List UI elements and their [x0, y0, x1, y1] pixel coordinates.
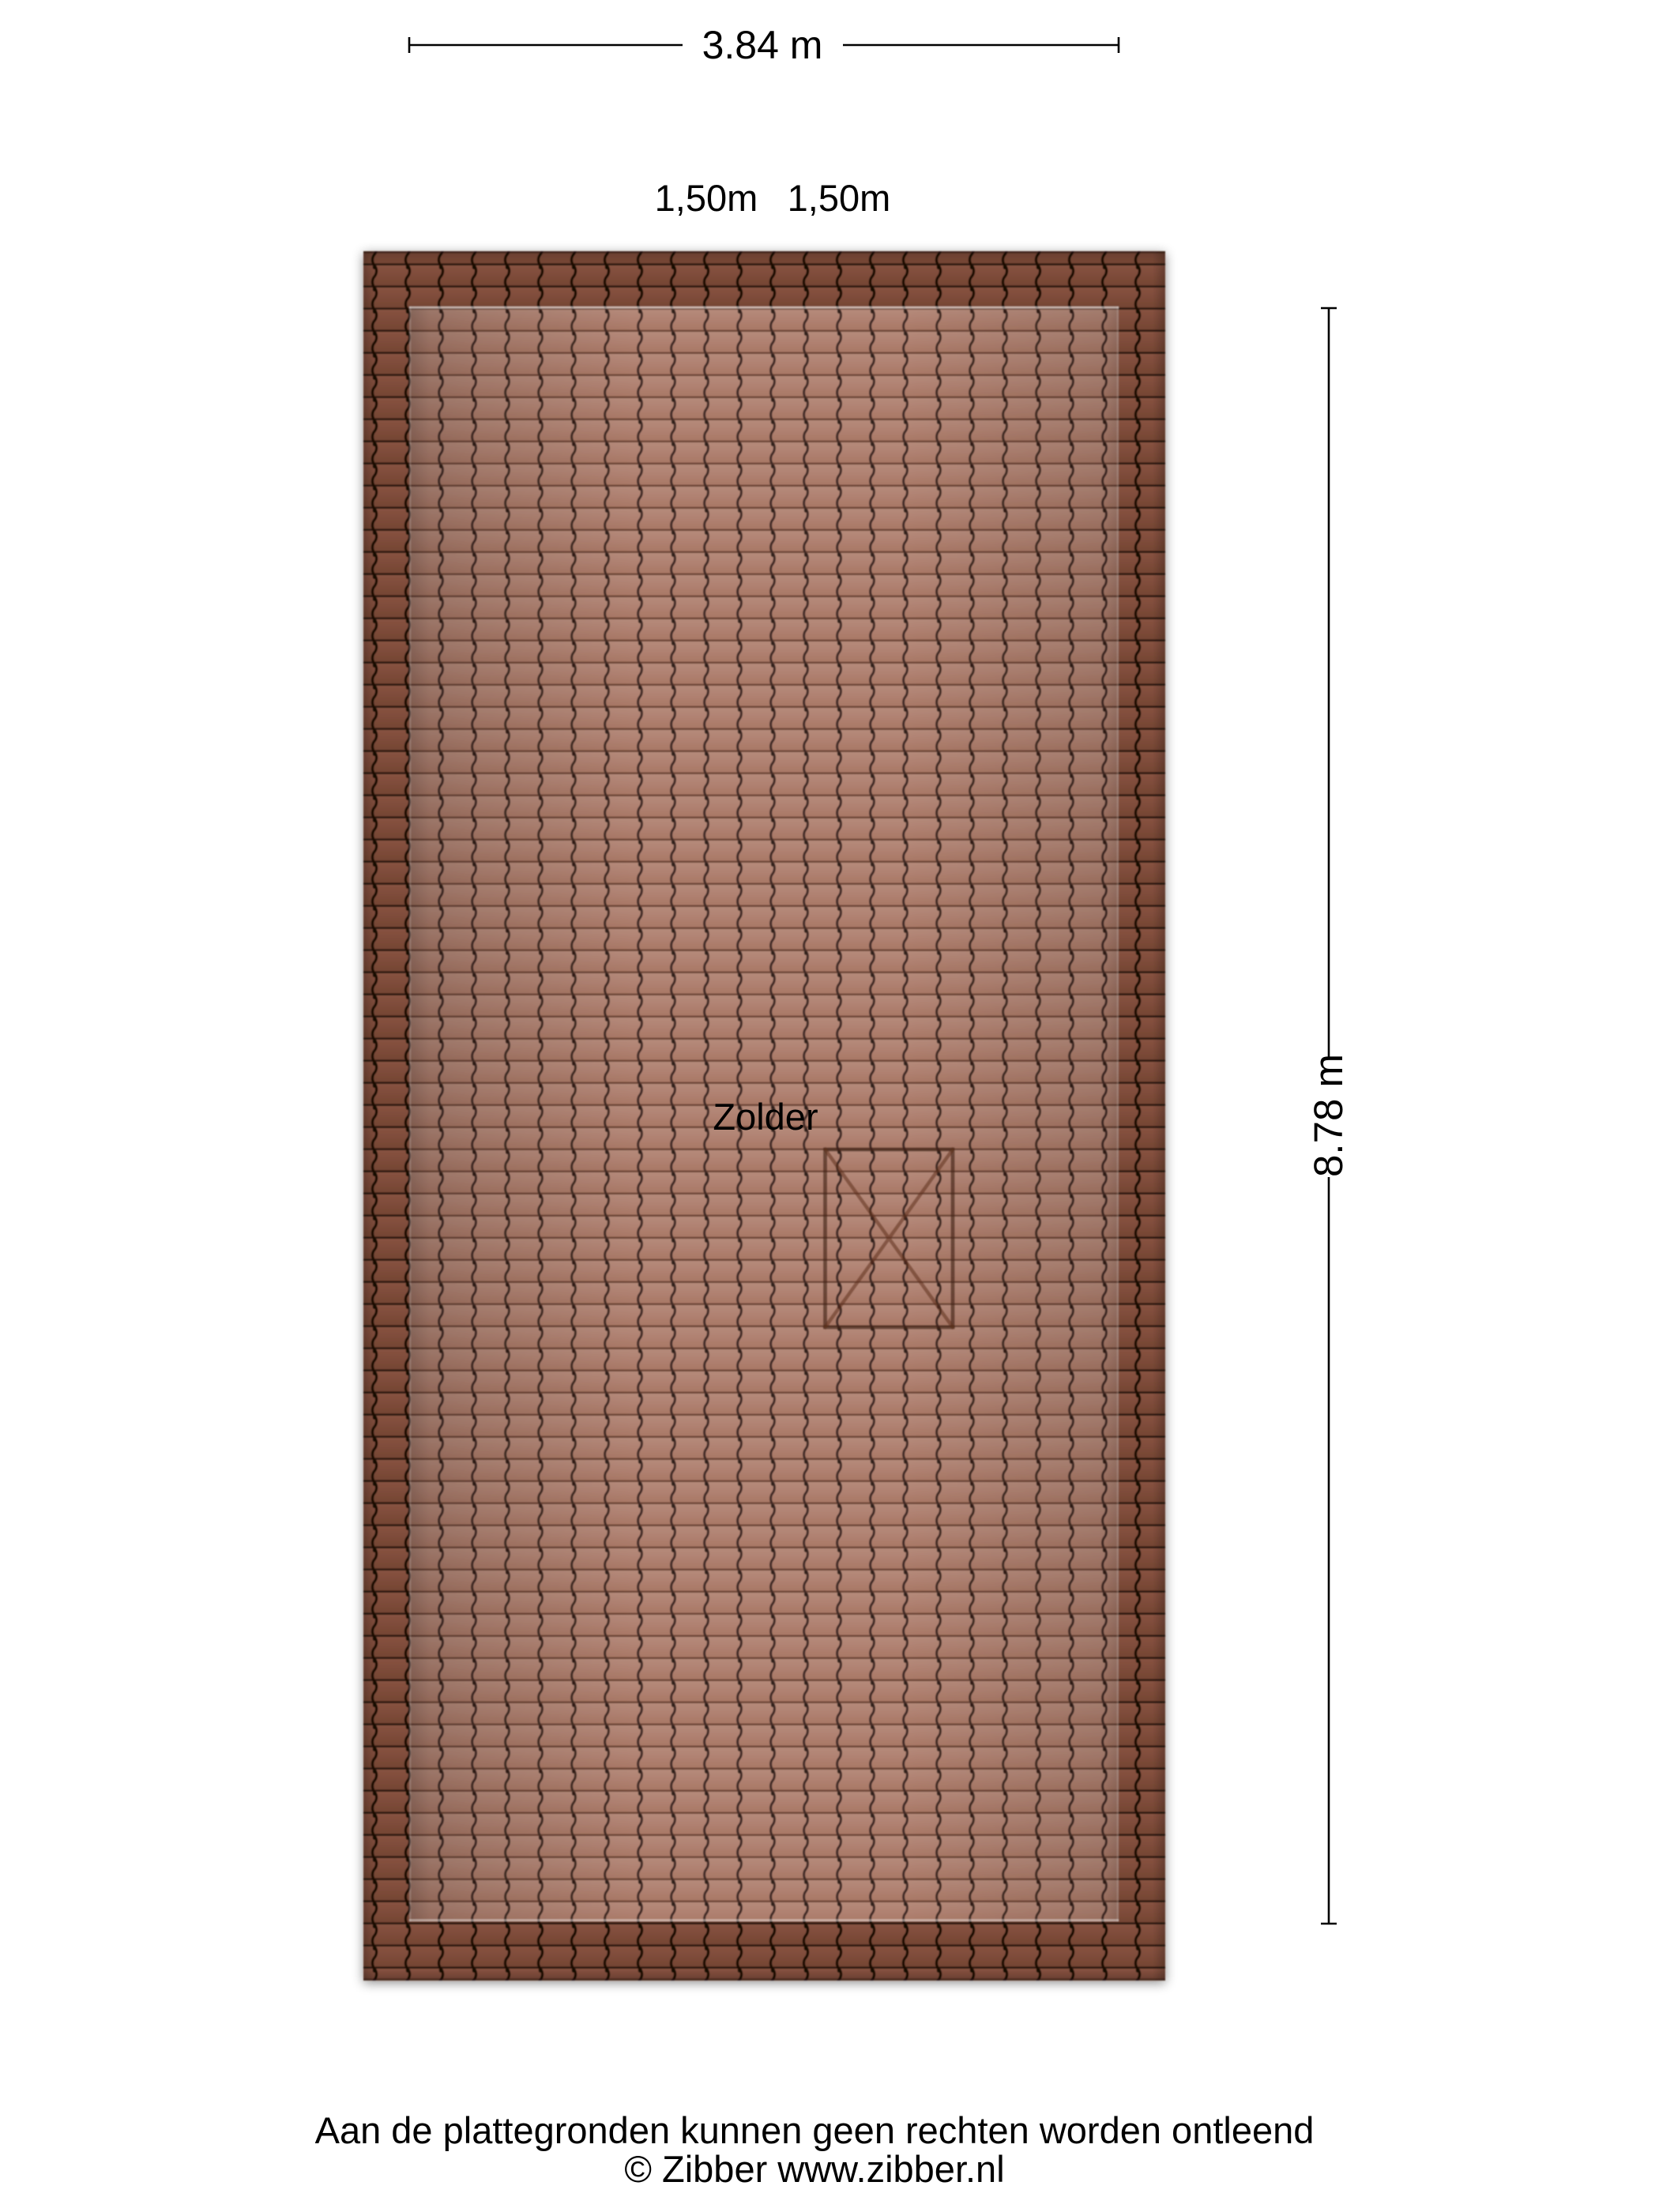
svg-text:8.78 m: 8.78 m — [1306, 1054, 1351, 1177]
svg-text:Zolder: Zolder — [713, 1096, 818, 1138]
svg-text:Aan de plattegronden kunnen ge: Aan de plattegronden kunnen geen rechten… — [315, 2109, 1315, 2151]
svg-text:1,50m: 1,50m — [788, 177, 891, 219]
svg-text:3.84 m: 3.84 m — [702, 23, 823, 67]
svg-text:© Zibber www.zibber.nl: © Zibber www.zibber.nl — [624, 2148, 1004, 2190]
svg-text:1,50m: 1,50m — [655, 177, 758, 219]
